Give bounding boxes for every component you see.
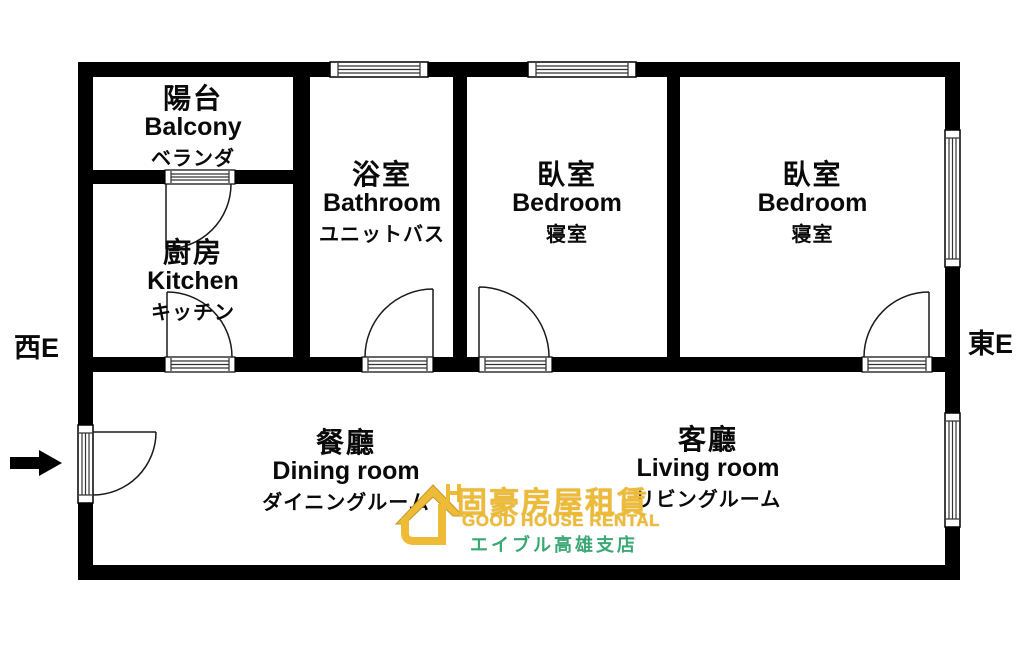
logo-branch-ja: エイブル高雄支店 [470,531,638,557]
window-bedroom1-top [528,62,636,77]
window-living-right [945,413,960,527]
bedroom1-name-zh: 臥室 [467,160,667,190]
door-bathroom [365,289,433,357]
window-bedroom2-right [945,130,960,267]
kitchen-name-ja: キッチン [93,302,293,324]
window-bathroom-top [330,62,428,77]
wall-bathroom-right [453,77,467,372]
door-entrance [93,432,156,495]
room-label-balcony: 陽台 Balcony ベランダ [93,84,293,170]
compass-east-label: 東E [968,322,1013,361]
house-logo-icon [393,478,465,548]
bedroom1-name-en: Bedroom [467,190,667,217]
room-label-bedroom2: 臥室 Bedroom 寝室 [680,160,945,246]
balcony-name-en: Balcony [93,114,293,141]
bedroom2-name-ja: 寝室 [680,224,945,246]
wall-bathroom-left [293,77,310,372]
bedroom2-name-zh: 臥室 [680,160,945,190]
bathroom-name-ja: ユニットバス [310,224,454,246]
room-label-kitchen: 廚房 Kitchen キッチン [93,238,293,324]
wall-bedrooms-divider [667,77,680,372]
kitchen-name-en: Kitchen [93,268,293,295]
entrance-arrow-icon [10,450,62,476]
kitchen-name-zh: 廚房 [93,238,293,268]
sill-bathroom-door [362,357,433,372]
room-label-bedroom1: 臥室 Bedroom 寝室 [467,160,667,246]
door-bedroom1 [479,287,549,357]
bedroom1-name-ja: 寝室 [467,224,667,246]
bathroom-name-zh: 浴室 [310,160,454,190]
sill-bedroom2-door [862,357,932,372]
sill-bedroom1-door [479,357,552,372]
entrance-opening [78,425,93,503]
compass-west-label: 西E [14,326,59,365]
bedroom2-name-en: Bedroom [680,190,945,217]
balcony-name-zh: 陽台 [93,84,293,114]
floor-plan: 西E 東E 陽台 Balcony ベランダ 廚房 Kitchen キッチン 浴室… [0,0,1024,645]
bathroom-name-en: Bathroom [310,190,454,217]
room-label-bathroom: 浴室 Bathroom ユニットバス [310,160,454,246]
agency-logo: 固豪房屋租賃 GOOD HOUSE RENTAL エイブル高雄支店 [393,476,663,568]
wall-top [78,62,960,77]
dining-name-zh: 餐廳 [196,428,496,458]
balcony-name-ja: ベランダ [93,148,293,170]
sill-balcony-door [165,170,235,184]
logo-company-name-en: GOOD HOUSE RENTAL [462,511,660,531]
living-name-zh: 客廳 [555,425,861,455]
door-bedroom2 [864,292,929,357]
sill-kitchen-door [165,357,235,372]
